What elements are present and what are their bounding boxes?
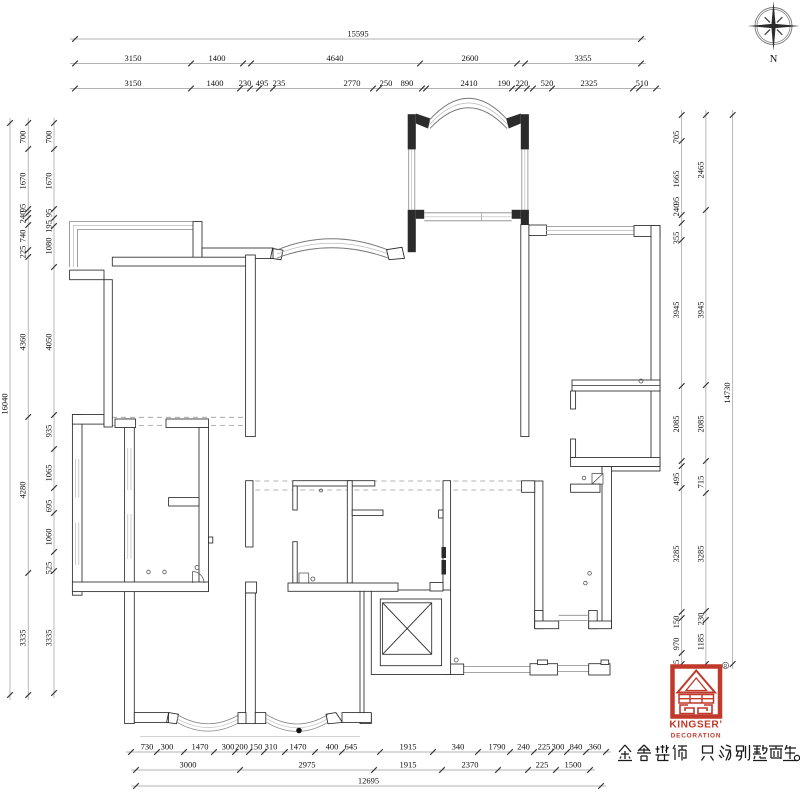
svg-text:2410: 2410 [461, 78, 478, 88]
svg-text:715: 715 [695, 476, 705, 489]
svg-text:1470: 1470 [290, 742, 307, 752]
svg-text:520: 520 [541, 78, 554, 88]
svg-text:95: 95 [44, 209, 54, 218]
svg-text:4640: 4640 [327, 53, 344, 63]
svg-text:1670: 1670 [18, 173, 28, 190]
svg-text:970: 970 [671, 638, 681, 651]
svg-text:200: 200 [235, 742, 248, 752]
svg-text:310: 310 [265, 742, 278, 752]
svg-text:4280: 4280 [18, 482, 28, 499]
svg-text:240: 240 [517, 742, 530, 752]
svg-text:4360: 4360 [18, 334, 28, 351]
svg-text:935: 935 [44, 425, 54, 438]
svg-text:2770: 2770 [344, 78, 361, 88]
svg-text:1065: 1065 [44, 465, 54, 482]
svg-text:190: 190 [498, 78, 511, 88]
svg-text:250: 250 [380, 78, 393, 88]
svg-text:890: 890 [401, 78, 414, 88]
svg-text:3000: 3000 [180, 760, 197, 770]
svg-text:235: 235 [273, 78, 286, 88]
svg-text:695: 695 [44, 500, 54, 513]
svg-text:1400: 1400 [207, 78, 224, 88]
svg-text:2600: 2600 [462, 53, 479, 63]
svg-text:495: 495 [256, 78, 269, 88]
svg-text:705: 705 [671, 131, 681, 144]
svg-text:1060: 1060 [44, 529, 54, 546]
svg-text:R: R [724, 664, 728, 670]
svg-text:300: 300 [161, 742, 174, 752]
svg-text:225: 225 [538, 742, 551, 752]
svg-text:355: 355 [671, 232, 681, 245]
svg-text:230: 230 [239, 78, 252, 88]
svg-text:525: 525 [44, 562, 54, 575]
svg-text:1500: 1500 [565, 760, 582, 770]
svg-text:360: 360 [589, 742, 602, 752]
svg-text:3945: 3945 [695, 302, 705, 319]
svg-text:1400: 1400 [209, 53, 226, 63]
svg-text:225: 225 [18, 246, 28, 259]
svg-text:4050: 4050 [44, 334, 54, 351]
svg-text:3285: 3285 [695, 546, 705, 563]
svg-text:3150: 3150 [125, 78, 142, 88]
svg-text:12695: 12695 [358, 776, 379, 786]
svg-text:2465: 2465 [695, 162, 705, 179]
svg-text:3355: 3355 [575, 53, 592, 63]
svg-text:220: 220 [516, 78, 529, 88]
svg-text:150: 150 [671, 616, 681, 629]
svg-text:700: 700 [18, 131, 28, 144]
svg-text:1665: 1665 [671, 171, 681, 188]
svg-text:1670: 1670 [44, 173, 54, 190]
svg-text:2370: 2370 [462, 760, 479, 770]
svg-text:16040: 16040 [0, 393, 10, 414]
svg-text:KINGSER’: KINGSER’ [669, 720, 722, 731]
svg-text:1470: 1470 [192, 742, 209, 752]
svg-text:495: 495 [671, 473, 681, 486]
svg-text:14730: 14730 [722, 382, 732, 403]
svg-text:2085: 2085 [695, 416, 705, 433]
svg-text:730: 730 [141, 742, 154, 752]
svg-text:DECORATION: DECORATION [671, 733, 721, 740]
svg-text:230: 230 [695, 613, 705, 626]
svg-text:240: 240 [671, 204, 681, 217]
svg-text:700: 700 [44, 131, 54, 144]
svg-text:1790: 1790 [489, 742, 506, 752]
svg-text:150: 150 [250, 742, 263, 752]
svg-text:400: 400 [326, 742, 339, 752]
svg-text:15595: 15595 [347, 29, 368, 39]
svg-text:840: 840 [570, 742, 583, 752]
svg-text:740: 740 [18, 230, 28, 243]
svg-text:240: 240 [18, 211, 28, 224]
svg-text:3150: 3150 [125, 53, 142, 63]
svg-text:N: N [770, 54, 778, 65]
svg-text:1915: 1915 [400, 742, 417, 752]
svg-text:340: 340 [452, 742, 465, 752]
svg-text:1080: 1080 [44, 238, 54, 255]
svg-text:195: 195 [44, 220, 54, 233]
svg-text:2085: 2085 [671, 416, 681, 433]
svg-text:3945: 3945 [671, 302, 681, 319]
svg-text:1185: 1185 [695, 634, 705, 651]
svg-text:645: 645 [345, 742, 358, 752]
svg-text:1915: 1915 [400, 760, 417, 770]
svg-text:225: 225 [536, 760, 549, 770]
svg-text:3285: 3285 [671, 546, 681, 563]
svg-text:510: 510 [636, 78, 649, 88]
svg-text:2325: 2325 [581, 78, 598, 88]
svg-text:300: 300 [222, 742, 235, 752]
svg-text:2975: 2975 [299, 760, 316, 770]
svg-text:3335: 3335 [18, 630, 28, 647]
svg-text:300: 300 [552, 742, 565, 752]
svg-text:3335: 3335 [44, 630, 54, 647]
